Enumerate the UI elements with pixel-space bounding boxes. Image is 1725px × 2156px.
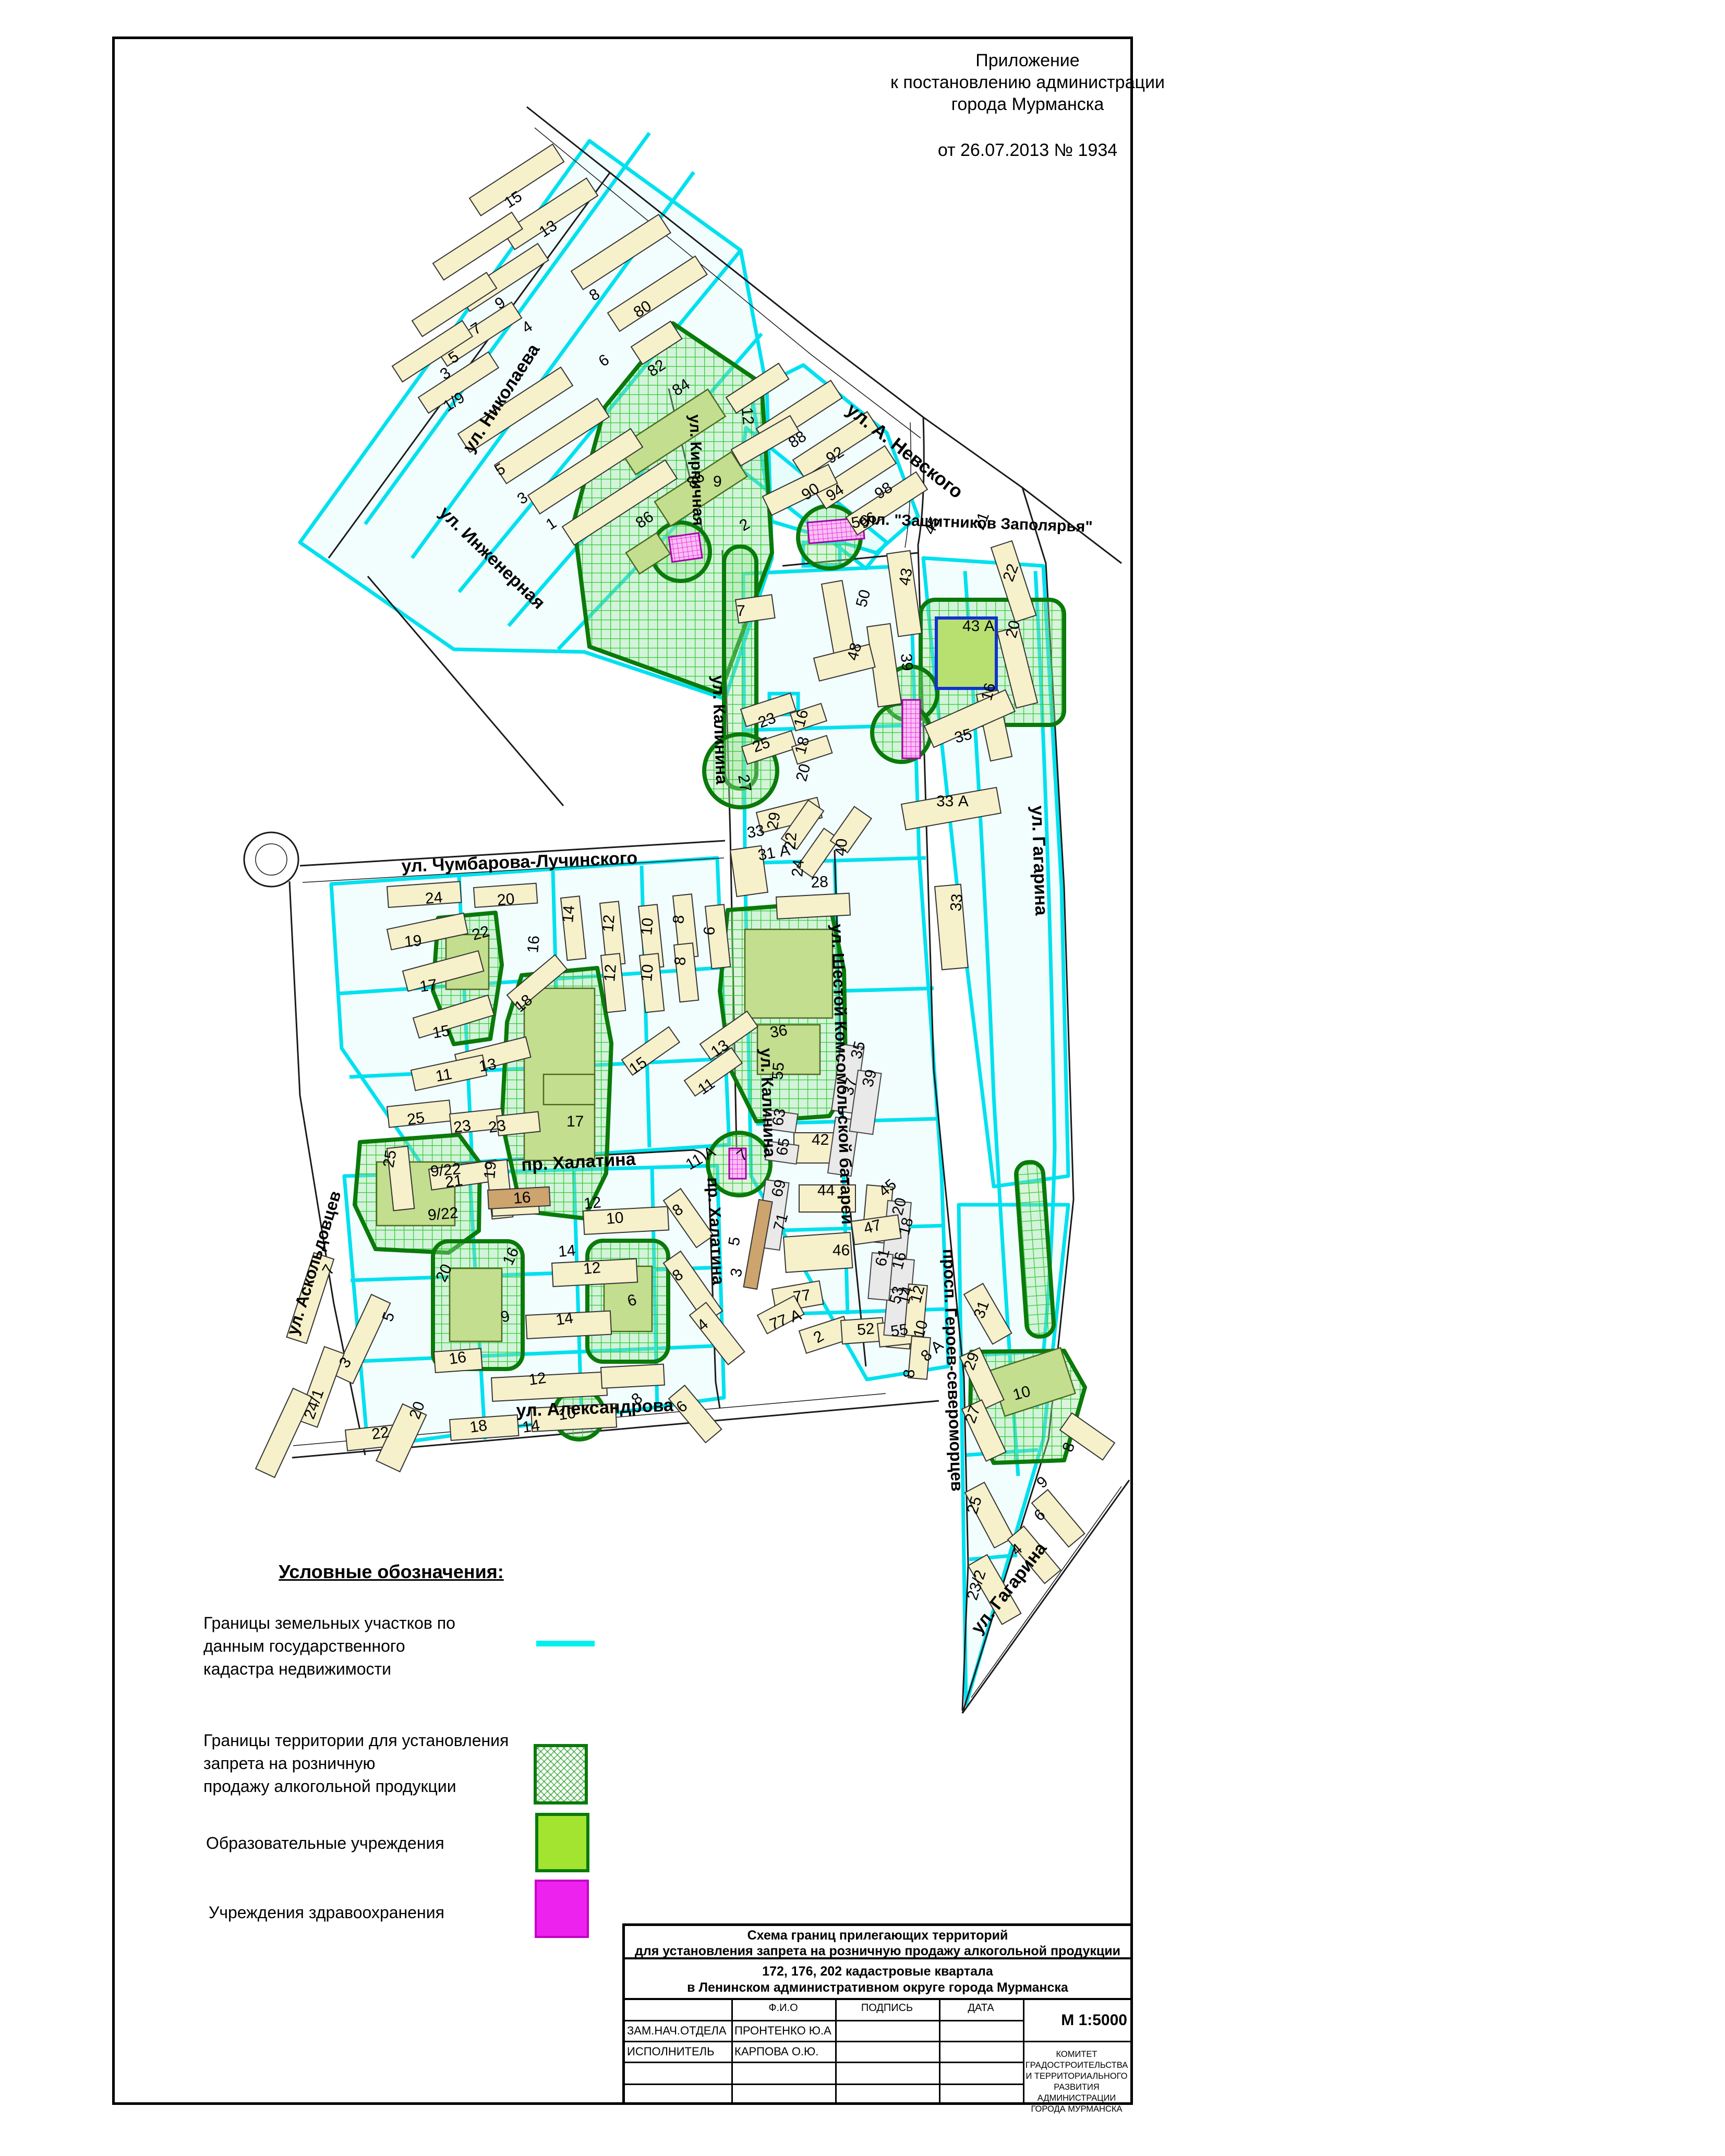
committee-name: КОМИТЕТ ГРАДОСТРОИТЕЛЬСТВА И ТЕРРИТОРИАЛ…: [1023, 2041, 1130, 2102]
building-number-label: 10: [638, 963, 657, 982]
building-number-label: 17: [566, 1113, 584, 1130]
building-number-label: 20: [497, 890, 515, 909]
building-number-label: 12: [583, 1259, 601, 1278]
building-number-label: 18: [468, 1417, 488, 1436]
building-number-label: 8: [670, 914, 687, 925]
building-number-label: 36: [768, 1022, 789, 1041]
building-number-label: 16: [524, 935, 543, 953]
building-number-label: 33: [745, 822, 766, 842]
building-number-label: 65: [773, 1137, 793, 1157]
legend-symbol-parcel-line: [536, 1641, 595, 1646]
building-number-label: 24: [425, 889, 443, 907]
building-number-label: 7: [737, 602, 745, 620]
building-number-label: 22: [370, 1424, 390, 1443]
building-number-label: 14: [558, 1242, 576, 1261]
building-number-label: 28: [811, 873, 829, 891]
building-number-label: 5: [725, 1236, 743, 1247]
title-line-1: Схема границ прилегающих территорий: [625, 1928, 1130, 1943]
legend-symbol-health: [535, 1880, 589, 1938]
building-number-label: 11: [434, 1065, 453, 1085]
building-number-label: 39: [897, 653, 916, 672]
legend-item-education-line1: Образовательные учреждения: [206, 1832, 540, 1855]
building-number-label: 44: [817, 1182, 835, 1199]
row-role-ispolnitel: ИСПОЛНИТЕЛЬ: [627, 2045, 730, 2058]
building-number-label: 12: [583, 1194, 602, 1213]
building-number-label: 12: [599, 914, 618, 932]
legend-item-ban-territory: Границы территории для установления запр…: [203, 1729, 548, 1798]
building-number-label: 33: [947, 893, 966, 912]
building-number-label: 25: [380, 1149, 400, 1169]
building-number-label: 10: [557, 1404, 577, 1424]
building-number-label: 13: [477, 1056, 498, 1075]
row-role-zam: ЗАМ.НАЧ.ОТДЕЛА: [627, 2024, 730, 2038]
building-number-label: 43: [896, 567, 915, 587]
row-name-karpova: КАРПОВА О.Ю.: [734, 2045, 835, 2058]
building-number-label: 9/22: [430, 1160, 462, 1180]
building-number-label: 19: [481, 1160, 500, 1179]
sheet: { "header": { "line1": "Приложение", "li…: [0, 0, 1725, 2156]
building-number-label: 3: [727, 1267, 745, 1278]
street-label: ул. Калинина: [709, 675, 731, 785]
building-number-label: 23: [452, 1117, 472, 1136]
building-number-label: 10: [638, 917, 657, 936]
building-number-label: 23: [487, 1117, 507, 1136]
building-number-label: 15: [431, 1022, 451, 1042]
col-header-fio: Ф.И.О: [731, 2002, 835, 2014]
building-number-label: 46: [833, 1242, 850, 1259]
legend-title: Условные обозначения:: [235, 1561, 548, 1583]
building-number-label: 40: [832, 838, 851, 856]
building-number-label: 77: [792, 1287, 812, 1306]
building-number-label: 24: [789, 858, 807, 877]
building-number-label: 8: [900, 1368, 918, 1379]
title-block-table: Ф.И.О ПОДПИСЬ ДАТА ЗАМ.НАЧ.ОТДЕЛА ПРОНТЕ…: [625, 2000, 1130, 2102]
building-number-label: 29: [764, 811, 783, 831]
building-number-label: 9: [1033, 1473, 1051, 1492]
committee-line-3: АДМИНИСТРАЦИИ: [1023, 2093, 1130, 2104]
map-scale: М 1:5000: [1023, 2000, 1130, 2041]
building-number-label: 12: [738, 407, 757, 426]
building-number-label: 55: [889, 1321, 909, 1340]
col-header-podpis: ПОДПИСЬ: [835, 2002, 939, 2014]
building-number-label: 16: [513, 1189, 532, 1207]
table-divider: [625, 2084, 1023, 2085]
legend-item-parcels-line2: данным государственного: [203, 1634, 537, 1657]
building-number-label: 14: [559, 904, 578, 923]
title-block-title: Схема границ прилегающих территорий для …: [625, 1926, 1130, 1959]
building-number-label: 63: [769, 1107, 789, 1128]
building-number-label: 33 А: [936, 793, 969, 810]
street-label: ул. Гагарина: [1028, 805, 1051, 916]
legend-item-parcels-line3: кадастра недвижимости: [203, 1657, 537, 1680]
building-number-label: 42: [812, 1131, 829, 1148]
building-number-label: 12: [527, 1370, 547, 1389]
table-divider: [625, 2062, 1023, 2063]
legend-item-ban-line1: Границы территории для установления: [203, 1729, 548, 1752]
building-number-label: 12: [601, 963, 620, 982]
legend-item-ban-line2: запрета на розничную: [203, 1752, 548, 1775]
legend-item-parcels: Границы земельных участков по данным гос…: [203, 1612, 537, 1680]
legend-item-education: Образовательные учреждения: [206, 1832, 540, 1855]
building-number-label: 52: [857, 1320, 875, 1339]
table-divider: [835, 2000, 837, 2102]
table-divider: [625, 2020, 1023, 2021]
subtitle-line-1: 172, 176, 202 кадастровые квартала: [625, 1964, 1130, 1980]
building-number-label: 43 А: [962, 617, 995, 635]
committee-line-1: КОМИТЕТ ГРАДОСТРОИТЕЛЬСТВА: [1023, 2049, 1130, 2071]
building-number-label: 16: [448, 1349, 467, 1368]
row-name-prontenko: ПРОНТЕНКО Ю.А: [734, 2024, 835, 2038]
title-block: Схема границ прилегающих территорий для …: [622, 1923, 1133, 2105]
building-number-label: 27: [734, 773, 754, 793]
building-number-label: 17: [418, 976, 438, 996]
building-number-label: 6: [701, 926, 718, 936]
building-number-label: 14: [554, 1310, 574, 1329]
building-number-label: 8: [671, 956, 689, 966]
building-number-label: 55: [769, 1061, 788, 1080]
building-number-label: 14: [521, 1417, 541, 1436]
legend-item-health: Учреждения здравоохранения: [209, 1901, 542, 1924]
legend-item-health-line1: Учреждения здравоохранения: [209, 1901, 542, 1924]
committee-line-2: И ТЕРРИТОРИАЛЬНОГО РАЗВИТИЯ: [1023, 2071, 1130, 2093]
title-line-2: для установления запрета на розничную пр…: [625, 1943, 1130, 1959]
building-number-label: 19: [404, 932, 423, 951]
legend-symbol-education: [535, 1813, 589, 1872]
legend-item-parcels-line1: Границы земельных участков по: [203, 1612, 537, 1634]
building-number-label: 9: [713, 473, 722, 490]
committee-line-4: ГОРОДА МУРМАНСКА: [1023, 2104, 1130, 2115]
building-number-label: 9/22: [427, 1204, 459, 1224]
legend-item-ban-line3: продажу алкогольной продукции: [203, 1775, 548, 1798]
legend-symbol-ban-hatch: [534, 1744, 588, 1804]
col-header-data: ДАТА: [939, 2002, 1023, 2014]
building-number-label: 56: [850, 512, 870, 532]
table-divider: [731, 2000, 733, 2102]
building-number-label: 10: [606, 1209, 624, 1228]
building-number-label: 25: [406, 1109, 426, 1129]
subtitle-line-2: в Ленинском административном округе горо…: [625, 1980, 1130, 1996]
title-block-subtitle: 172, 176, 202 кадастровые квартала в Лен…: [625, 1959, 1130, 2000]
table-divider: [939, 2000, 940, 2102]
